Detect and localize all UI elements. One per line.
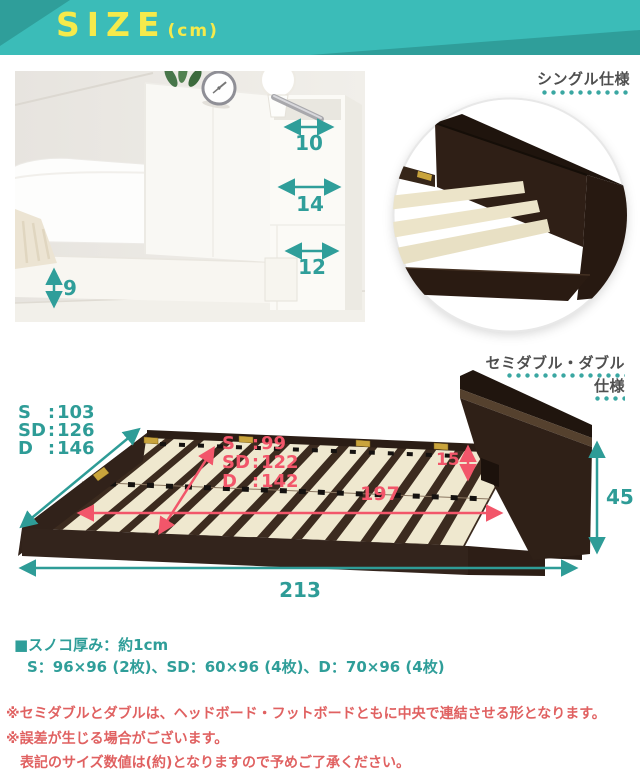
corner-triangle-bottom-right [310, 30, 640, 55]
base-drawer-box [265, 258, 297, 301]
page-title-unit: (cm) [168, 21, 219, 41]
dim-value-headboard-height: 15 [436, 450, 460, 470]
size-header-banner: SIZE (cm) [0, 0, 640, 55]
disclaimer-line3: 表記のサイズ数値は(約)となりますので予めご了承ください。 [6, 751, 638, 776]
inner-width-row: SD:122 [222, 453, 299, 472]
outer-width-row: D:146 [18, 440, 95, 458]
dim-value-column-lower: 12 [298, 255, 326, 279]
dim-value-base-height: 9 [63, 276, 77, 300]
size-spec-sheet: SIZE (cm) [0, 0, 640, 783]
dim-value-column-width: 14 [296, 192, 324, 216]
inner-width-row: D:142 [222, 472, 299, 491]
dim-value-total-height: 45 [606, 485, 634, 509]
slat-note-line2: S：96×96 (2枚)、SD：60×96 (4枚)、D：70×96 (4枚) [14, 656, 445, 678]
disclaimer-line2: ※誤差が生じる場合がございます。 [6, 727, 638, 752]
frame-detail-circle-photo [392, 97, 628, 333]
page-title: SIZE [56, 5, 167, 44]
header-text: SIZE (cm) [56, 5, 219, 44]
disclaimer-notes: ※セミダブルとダブルは、ヘッドボード・フットボードともに中央で連結させる形となり… [6, 702, 638, 776]
headboard-panel [145, 83, 270, 262]
single-spec-label: シングル仕様 [510, 72, 630, 87]
disclaimer-line1: ※セミダブルとダブルは、ヘッドボード・フットボードともに中央で連結させる形となり… [6, 702, 638, 727]
slat-thickness-note: ■スノコ厚み：約1cm S：96×96 (2枚)、SD：60×96 (4枚)、D… [14, 634, 445, 678]
single-bed-photo: 10 14 12 9 [15, 71, 365, 322]
single-spec-dots [542, 90, 630, 95]
inner-width-row: S:99 [222, 434, 299, 453]
dim-value-inner-length: 197 [350, 483, 410, 505]
frame-drawing [18, 370, 592, 576]
inner-width-list: S:99 SD:122 D:142 [222, 434, 299, 491]
bed-frame-illustration [0, 360, 640, 610]
slat-note-line1: ■スノコ厚み：約1cm [14, 634, 445, 656]
dim-value-shelf-depth: 10 [295, 131, 323, 155]
outer-width-list: S:103 SD:126 D:146 [18, 404, 95, 458]
dim-value-total-length: 213 [255, 578, 345, 602]
